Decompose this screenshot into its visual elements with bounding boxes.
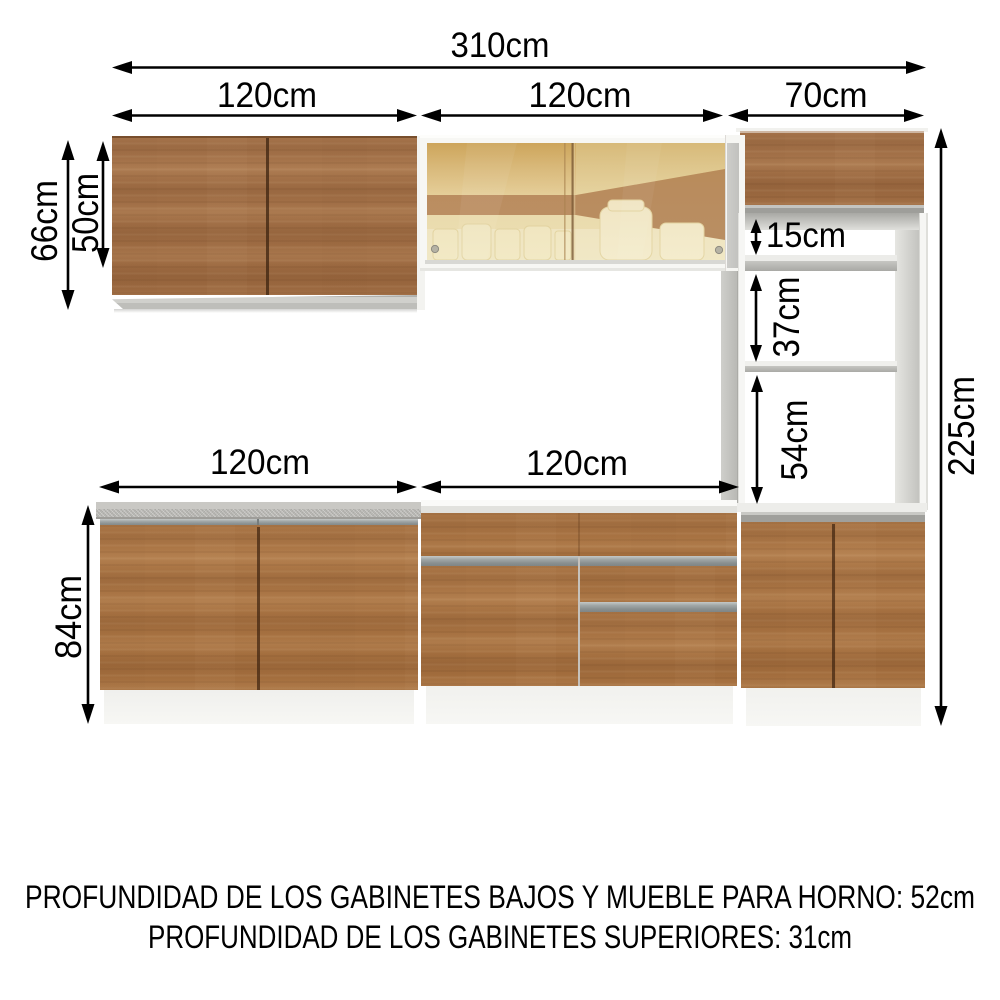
svg-text:54cm: 54cm: [774, 400, 815, 481]
svg-text:PROFUNDIDAD DE LOS GABINETES B: PROFUNDIDAD DE LOS GABINETES BAJOS Y MUE…: [25, 879, 975, 915]
svg-text:120cm: 120cm: [210, 443, 310, 482]
svg-text:84cm: 84cm: [48, 575, 89, 659]
svg-text:310cm: 310cm: [451, 26, 550, 65]
svg-text:120cm: 120cm: [526, 444, 628, 483]
svg-text:120cm: 120cm: [217, 76, 317, 115]
svg-text:15cm: 15cm: [766, 216, 846, 255]
svg-text:70cm: 70cm: [785, 76, 868, 115]
svg-text:66cm: 66cm: [24, 180, 65, 262]
svg-text:120cm: 120cm: [529, 76, 632, 115]
svg-text:225cm: 225cm: [941, 376, 982, 476]
svg-text:PROFUNDIDAD DE LOS GABINETES S: PROFUNDIDAD DE LOS GABINETES SUPERIORES:…: [148, 919, 852, 955]
svg-text:37cm: 37cm: [766, 277, 807, 358]
svg-text:50cm: 50cm: [65, 173, 106, 253]
